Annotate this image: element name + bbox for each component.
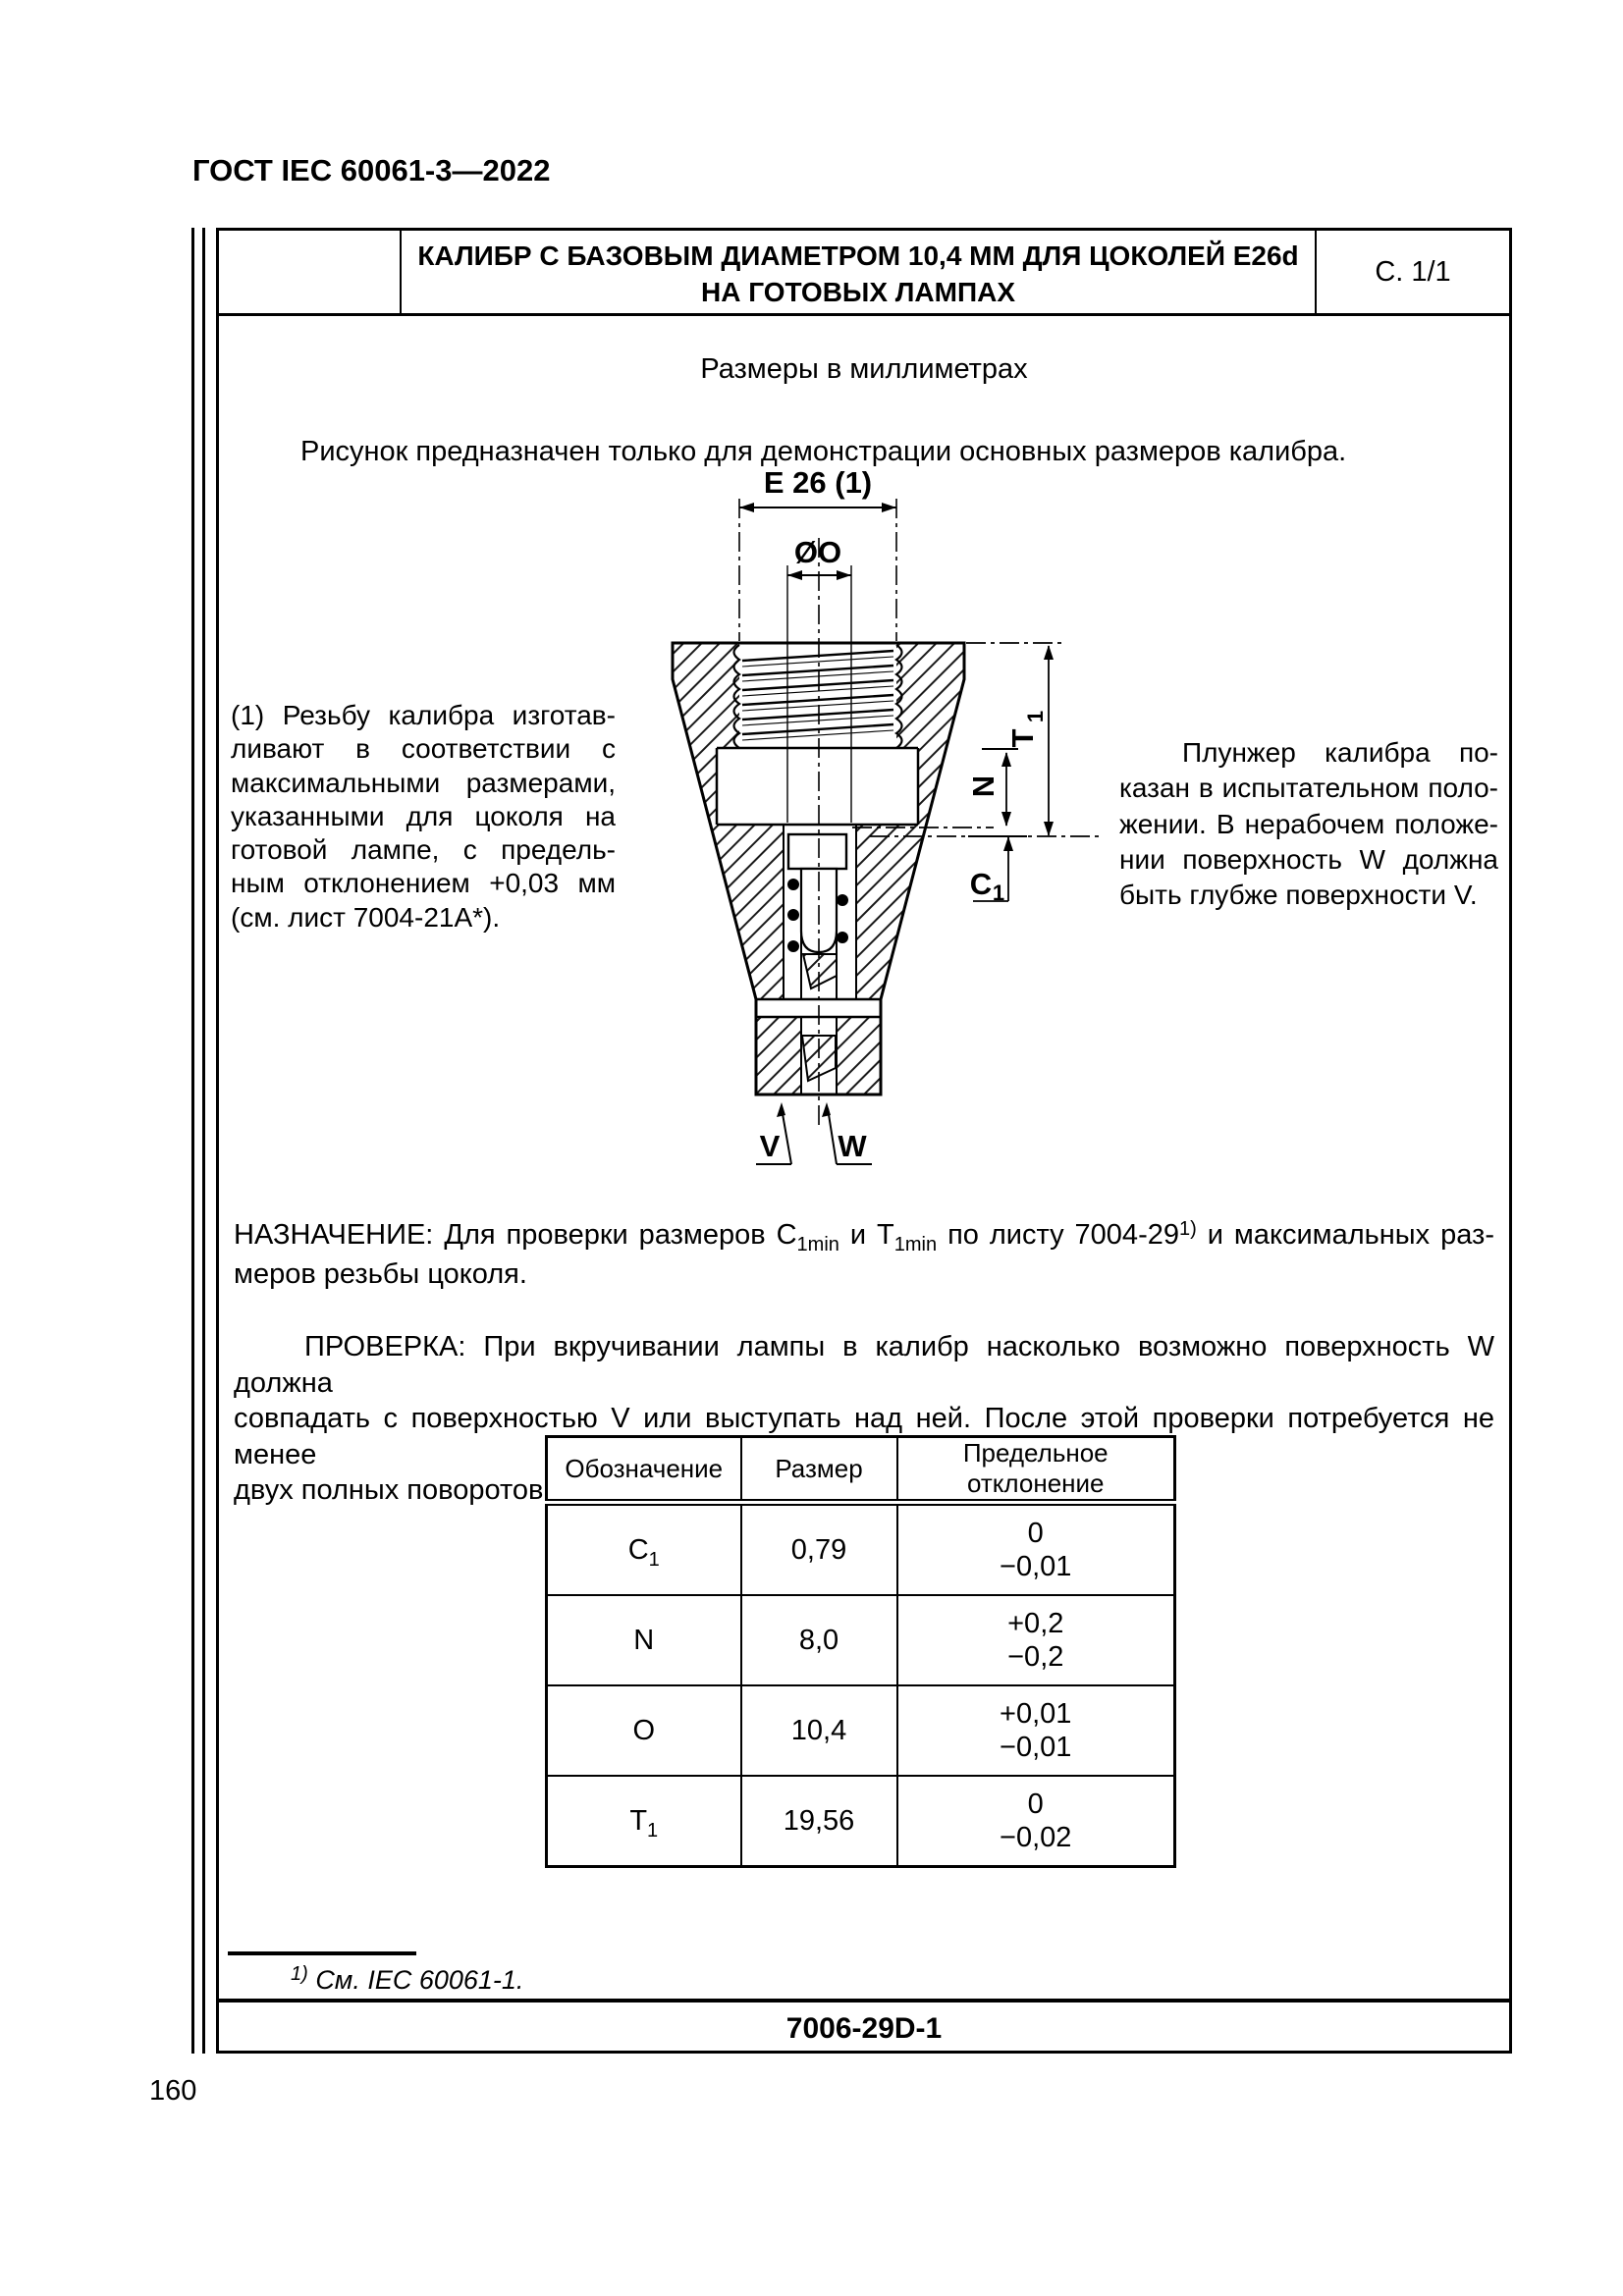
table-row: N 8,0 +0,2−0,2 [547, 1595, 1175, 1685]
arrowhead [1044, 822, 1054, 836]
footnote: 1) См. IEC 60061-1. [291, 1965, 523, 1996]
designation-cell: N [547, 1595, 741, 1685]
t1-label-subscript: 1 [1023, 711, 1048, 722]
arrowhead [777, 1102, 785, 1117]
deviation-plus: 0 [898, 1788, 1174, 1821]
plunger-retainer [788, 834, 846, 869]
arrowhead [1003, 836, 1013, 851]
note-line: (1) Резьбу калибра изготав- [231, 699, 616, 732]
dimension-symbol-subscript: 1 [647, 1820, 658, 1842]
note-line: быть глубже поверхности V. [1119, 878, 1498, 913]
dimension-symbol: N [633, 1625, 654, 1656]
note-line: Плунжер калибра по- [1119, 735, 1498, 771]
arrowhead [837, 570, 851, 580]
arrowhead [739, 503, 754, 512]
diameter-o-label: ØO [794, 535, 841, 569]
col-header-size: Размер [741, 1437, 897, 1503]
document-page: ГОСТ IEC 60061-3—2022 КАЛИБР С БАЗОВЫМ Д… [0, 0, 1623, 2296]
arrowhead [1001, 752, 1011, 767]
note-line: ным отклонением +0,03 мм [231, 867, 616, 900]
designation-cell: T1 [547, 1776, 741, 1867]
note-line: жении. В нерабочем положе- [1119, 807, 1498, 842]
size-cell: 19,56 [741, 1776, 897, 1867]
units-note: Размеры в миллиметрах [216, 353, 1512, 386]
dimension-symbol: O [632, 1715, 655, 1746]
purpose-line: НАЗНАЧЕНИЕ: Для проверки размеров C1min … [234, 1215, 1494, 1255]
thread-note: (1) Резьбу калибра изготав- ливают в соо… [231, 699, 616, 934]
deviation-cell: +0,01−0,01 [897, 1685, 1175, 1776]
t1min-subscript: 1min [894, 1234, 937, 1255]
c1-label: C [970, 867, 992, 901]
left-double-rule-inner [202, 228, 205, 2054]
v-label: V [760, 1129, 781, 1163]
plunger-note: Плунжер калибра по- казан в испытательно… [1119, 735, 1498, 913]
col-header-designation: Обозначение [547, 1437, 741, 1503]
sheet-title-line-2: НА ГОТОВЫХ ЛАМПАХ [402, 274, 1315, 310]
n-label: N [966, 775, 1001, 797]
c1-label-subscript: 1 [993, 881, 1004, 905]
purpose-text: и максимальных раз- [1197, 1219, 1494, 1251]
sheet-page-indicator: С. 1/1 [1315, 231, 1509, 313]
purpose-paragraph: НАЗНАЧЕНИЕ: Для проверки размеров C1min … [234, 1215, 1494, 1294]
footnote-marker: 1) [291, 1963, 308, 1985]
dimension-symbol: C [628, 1534, 649, 1566]
arrowhead [1001, 812, 1011, 827]
w-label: W [838, 1129, 867, 1163]
t1-label: T [1005, 728, 1040, 747]
note-line: казан в испытательном поло- [1119, 771, 1498, 806]
size-cell: 10,4 [741, 1685, 897, 1776]
designation-cell: C1 [547, 1503, 741, 1596]
purpose-text: по листу 7004-29 [937, 1219, 1179, 1251]
arrowhead [787, 570, 802, 580]
plunger-wedge-upper [803, 954, 837, 988]
flange-band [717, 748, 918, 825]
col-header-deviation: Предельное отклонение [897, 1437, 1175, 1503]
note-line: (см. лист 7004-21А*). [231, 901, 616, 934]
note-line: указанными для цоколя на [231, 800, 616, 833]
deviation-cell: 0−0,01 [897, 1503, 1175, 1596]
title-block: КАЛИБР С БАЗОВЫМ ДИАМЕТРОМ 10,4 ММ ДЛЯ Ц… [216, 228, 1512, 316]
purpose-line: меров резьбы цоколя. [234, 1255, 1494, 1294]
dimension-symbol: T [629, 1805, 647, 1837]
e26-label: E 26 (1) [764, 465, 872, 500]
title-block-empty-cell [219, 231, 402, 313]
note-line: готовой лампе, с предель- [231, 833, 616, 867]
e26-extension-lines [739, 499, 896, 641]
left-double-rule-outer [191, 228, 194, 2054]
deviation-minus: −0,2 [898, 1640, 1174, 1674]
footnote-marker: 1) [1179, 1218, 1197, 1240]
table-row: O 10,4 +0,01−0,01 [547, 1685, 1175, 1776]
check-line: ПРОВЕРКА: При вкручивании лампы в калибр… [234, 1329, 1494, 1401]
designation-cell: O [547, 1685, 741, 1776]
deviation-cell: 0−0,02 [897, 1776, 1175, 1867]
deviation-minus: −0,01 [898, 1731, 1174, 1764]
gauge-technical-drawing: E 26 (1) ØO T 1 N C 1 V W [589, 461, 1104, 1178]
deviation-plus: 0 [898, 1517, 1174, 1550]
arrowhead [822, 1102, 831, 1117]
arrowhead [1044, 645, 1054, 660]
purpose-text: и T [839, 1219, 894, 1251]
note-line: ливают в соответствии с [231, 732, 616, 766]
deviation-plus: +0,2 [898, 1607, 1174, 1640]
footnote-text: См. IEC 60061-1. [315, 1965, 523, 1995]
size-cell: 8,0 [741, 1595, 897, 1685]
table-header-row: Обозначение Размер Предельное отклонение [547, 1437, 1175, 1503]
footnote-rule [228, 1951, 416, 1955]
size-cell: 0,79 [741, 1503, 897, 1596]
note-line: максимальными размерами, [231, 767, 616, 800]
deviation-minus: −0,01 [898, 1550, 1174, 1583]
note-line: нии поверхность W должна [1119, 842, 1498, 878]
purpose-text: НАЗНАЧЕНИЕ: Для проверки размеров C [234, 1219, 797, 1251]
dimensions-table: Обозначение Размер Предельное отклонение… [545, 1435, 1176, 1868]
page-number: 160 [149, 2075, 196, 2108]
deviation-plus: +0,01 [898, 1697, 1174, 1731]
table-row: T1 19,56 0−0,02 [547, 1776, 1175, 1867]
sheet-title: КАЛИБР С БАЗОВЫМ ДИАМЕТРОМ 10,4 ММ ДЛЯ Ц… [402, 231, 1315, 313]
arrowhead [882, 503, 896, 512]
sheet-code: 7006-29D-1 [216, 2012, 1512, 2046]
c1min-subscript: 1min [797, 1234, 839, 1255]
standard-reference: ГОСТ IEC 60061-3—2022 [192, 153, 550, 188]
thread-lines [742, 651, 893, 740]
table-row: C1 0,79 0−0,01 [547, 1503, 1175, 1596]
sheet-title-line-1: КАЛИБР С БАЗОВЫМ ДИАМЕТРОМ 10,4 ММ ДЛЯ Ц… [402, 238, 1315, 274]
dimension-symbol-subscript: 1 [649, 1549, 660, 1571]
footer-separator-line [216, 1999, 1512, 2002]
deviation-minus: −0,02 [898, 1821, 1174, 1854]
deviation-cell: +0,2−0,2 [897, 1595, 1175, 1685]
